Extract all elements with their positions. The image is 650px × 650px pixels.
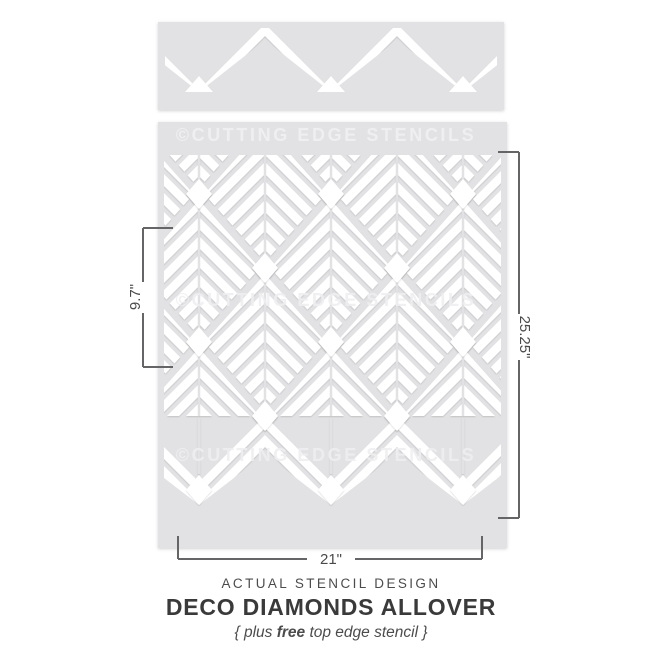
caption-subtitle: { plus free top edge stencil } <box>0 624 650 642</box>
watermark-bottom: ©CUTTING EDGE STENCILS <box>176 445 476 465</box>
repeat-height-label: 9.7" <box>127 284 144 310</box>
product-title: DECO DIAMONDS ALLOVER <box>0 594 650 621</box>
main-stencil-sheet: ©CUTTING EDGE STENCILS ©CUTTING EDGE STE… <box>158 122 507 548</box>
caption-block: ACTUAL STENCIL DESIGN DECO DIAMONDS ALLO… <box>0 576 650 642</box>
watermark-middle: ©CUTTING EDGE STENCILS <box>176 290 476 310</box>
top-edge-stencil-sheet <box>158 22 504 110</box>
subtitle-suffix: top edge stencil } <box>305 624 427 641</box>
sheet-height-label: 25.25" <box>516 316 533 359</box>
caption-kicker: ACTUAL STENCIL DESIGN <box>0 576 650 591</box>
subtitle-prefix: { plus <box>234 624 276 641</box>
watermark-top: ©CUTTING EDGE STENCILS <box>176 125 476 145</box>
sheet-width-label: 21" <box>320 551 342 568</box>
subtitle-free: free <box>277 624 305 641</box>
product-image-page: { "stencil": { "watermark": "©CUTTING ED… <box>0 0 650 650</box>
